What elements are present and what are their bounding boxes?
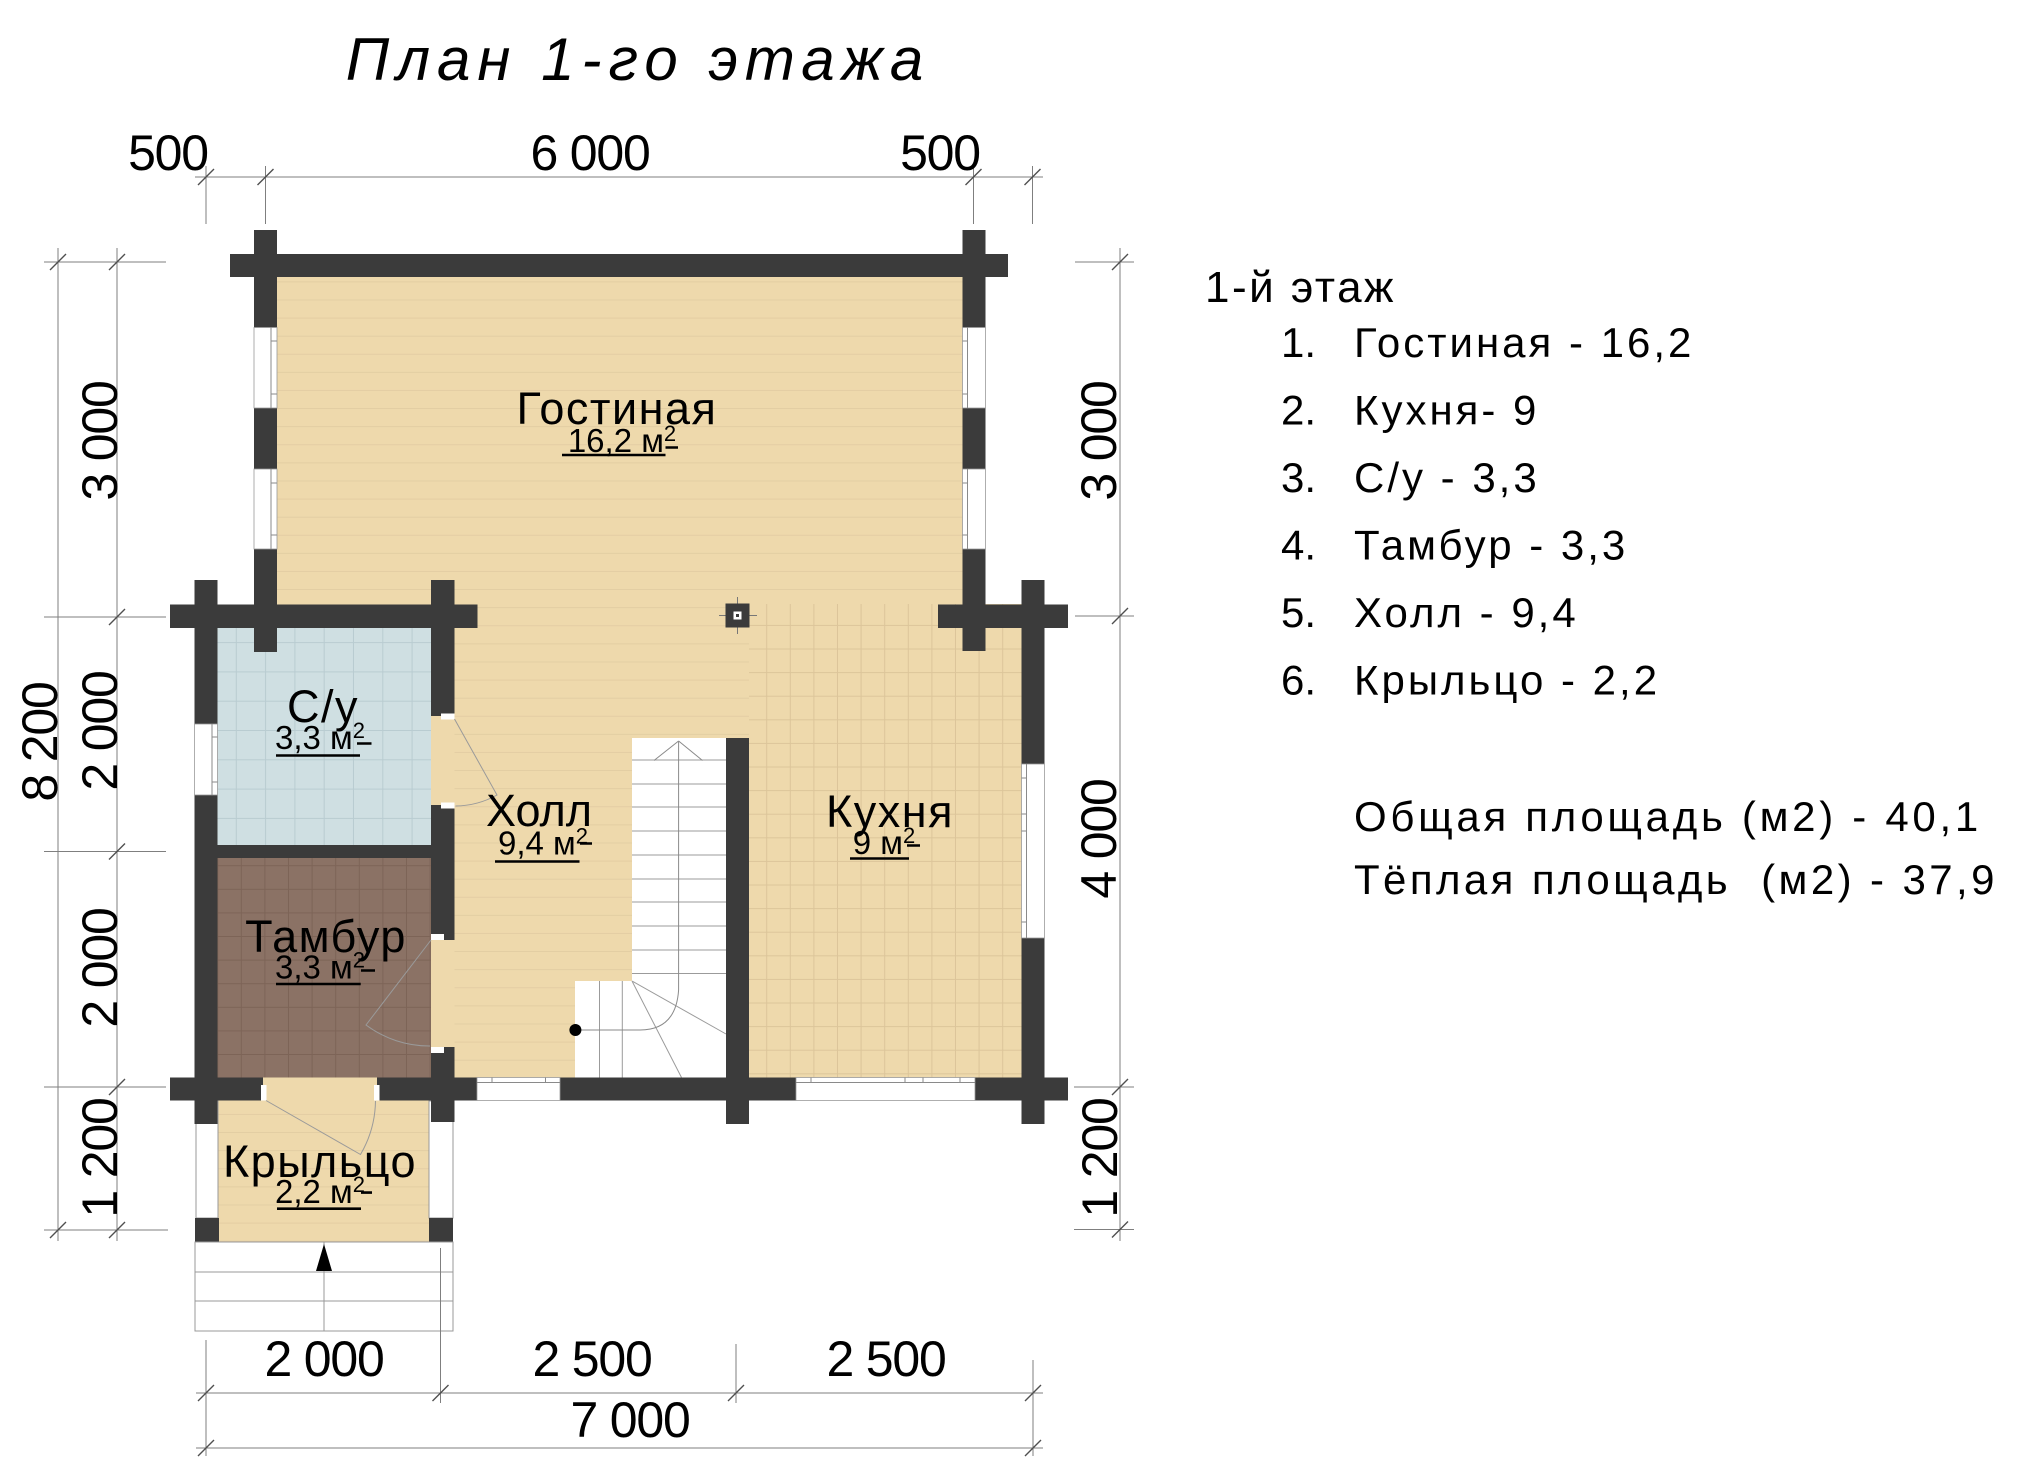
svg-text:16,2 м2: 16,2 м2 [568,421,676,459]
svg-text:3.: 3. [1281,454,1316,501]
svg-text:1.: 1. [1281,319,1316,366]
svg-text:2 500: 2 500 [826,1331,945,1387]
svg-text:2 500: 2 500 [532,1331,651,1387]
svg-text:Холл - 9,4: Холл - 9,4 [1354,589,1579,636]
svg-text:4 000: 4 000 [1071,779,1127,898]
svg-text:Крыльцо - 2,2: Крыльцо - 2,2 [1354,657,1660,704]
svg-text:3 000: 3 000 [1071,381,1127,500]
svg-text:Кухня- 9: Кухня- 9 [1354,387,1539,434]
svg-text:С/у - 3,3: С/у - 3,3 [1354,454,1540,501]
svg-text:8 200: 8 200 [12,682,68,801]
svg-text:1 200: 1 200 [1072,1098,1128,1217]
svg-text:1-й этаж: 1-й этаж [1205,263,1396,312]
svg-text:2 000: 2 000 [72,671,128,790]
svg-text:3,3 м2: 3,3 м2 [275,948,365,986]
svg-text:План 1-го этажа: План 1-го этажа [346,26,931,93]
svg-text:6.: 6. [1281,657,1316,704]
svg-text:3,3 м2: 3,3 м2 [275,718,365,756]
svg-text:2.: 2. [1281,387,1316,434]
svg-text:3 000: 3 000 [72,381,128,500]
svg-text:2 000: 2 000 [72,908,128,1027]
svg-text:500: 500 [128,125,208,181]
svg-text:5.: 5. [1281,589,1316,636]
svg-text:1 200: 1 200 [72,1098,128,1217]
svg-text:2 000: 2 000 [264,1331,383,1387]
svg-text:6 000: 6 000 [530,125,649,181]
svg-text:Гостиная - 16,2: Гостиная - 16,2 [1354,319,1694,366]
svg-text:500: 500 [900,125,980,181]
svg-text:9,4 м2: 9,4 м2 [498,824,588,862]
svg-text:Тёплая площадь (м2) - 37,9: Тёплая площадь (м2) - 37,9 [1354,856,1998,903]
svg-text:Общая площадь (м2) - 40,1: Общая площадь (м2) - 40,1 [1354,793,1982,840]
svg-text:Тамбур - 3,3: Тамбур - 3,3 [1354,522,1628,569]
svg-text:7 000: 7 000 [570,1392,689,1448]
svg-text:4.: 4. [1281,522,1316,569]
svg-text:2,2 м2: 2,2 м2 [275,1172,365,1210]
